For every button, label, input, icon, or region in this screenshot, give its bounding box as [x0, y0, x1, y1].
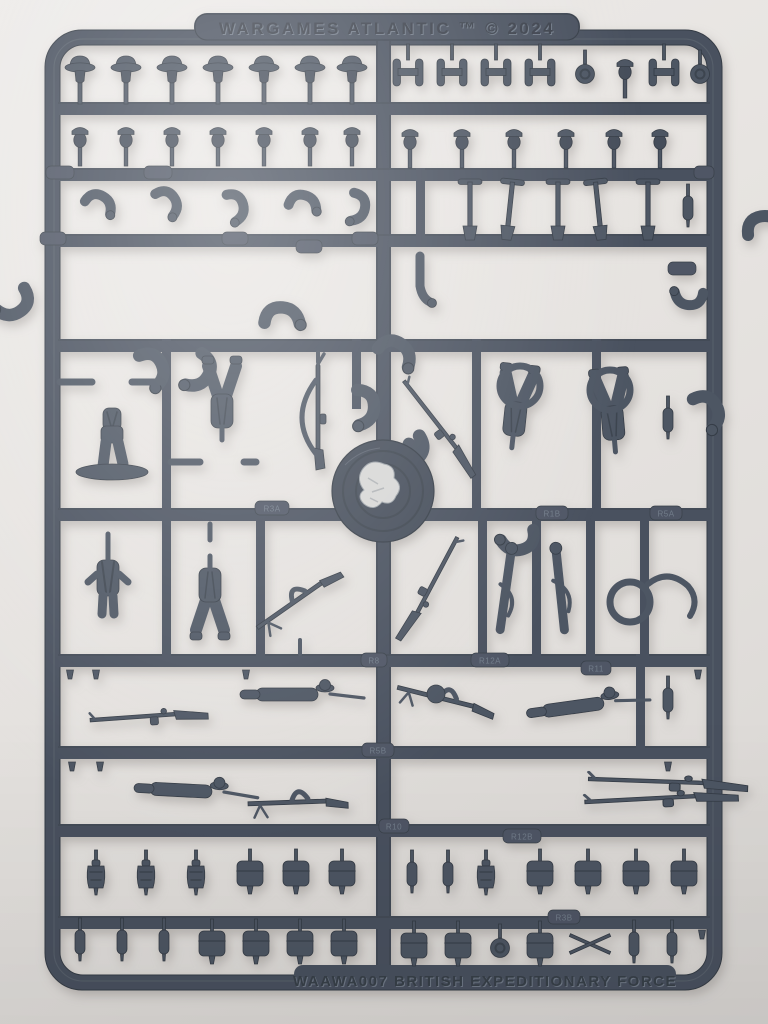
- tag-r3b-text: R3B: [555, 914, 572, 923]
- tag-r5a-text: R5A: [657, 510, 674, 519]
- sprue-frame: WARGAMES ATLANTIC ™ © 2024 WARGAMES ATLA…: [0, 13, 768, 991]
- tag-r5b-text: R5B: [369, 747, 386, 756]
- sprue-photo: WARGAMES ATLANTIC ™ © 2024 WARGAMES ATLA…: [0, 0, 768, 1024]
- tag-r8: R8: [361, 653, 387, 667]
- tag-r3a-text: R3A: [263, 505, 280, 514]
- bottom-embossed-plate: WAAWA007 BRITISH EXPEDITIONARY FORCE WAA…: [293, 965, 678, 991]
- entrenching-tools-row: [458, 178, 693, 241]
- top-embossed-plate: WARGAMES ATLANTIC ™ © 2024 WARGAMES ATLA…: [194, 13, 580, 41]
- tag-r12a-text: R12A: [479, 657, 501, 666]
- tag-r5b: R5B: [362, 743, 394, 757]
- kit-row-1: [87, 849, 697, 895]
- tag-r11-text: R11: [588, 665, 604, 674]
- injection-hub: [332, 440, 434, 542]
- tag-r11: R11: [581, 661, 611, 675]
- top-embossed-text: WARGAMES ATLANTIC ™ © 2024: [219, 19, 555, 38]
- helmet-heads-row: [65, 56, 367, 104]
- tag-r12a: R12A: [471, 653, 509, 667]
- torso-and-rifle-section-b: [88, 524, 695, 654]
- bottom-embossed-text: WAAWA007 BRITISH EXPEDITIONARY FORCE: [293, 973, 677, 990]
- small-arms-row: [84, 188, 373, 229]
- weapons-row-2: [69, 762, 748, 818]
- tag-r1b: R1B: [536, 506, 568, 520]
- tag-r1b-text: R1B: [543, 510, 560, 519]
- sprue-drawing: WARGAMES ATLANTIC ™ © 2024 WARGAMES ATLA…: [0, 0, 768, 1024]
- tag-r12b-text: R12B: [511, 833, 533, 842]
- tag-r3a: R3A: [255, 501, 289, 515]
- tag-r12b: R12B: [503, 829, 541, 843]
- tool-handle-parts-row: [393, 44, 710, 98]
- tag-r10-text: R10: [386, 823, 402, 832]
- tag-r5a: R5A: [650, 506, 682, 520]
- tag-r10: R10: [379, 819, 409, 833]
- tag-r3b: R3B: [548, 910, 580, 924]
- cap-heads-row: [72, 128, 668, 169]
- tag-r8-text: R8: [368, 657, 379, 666]
